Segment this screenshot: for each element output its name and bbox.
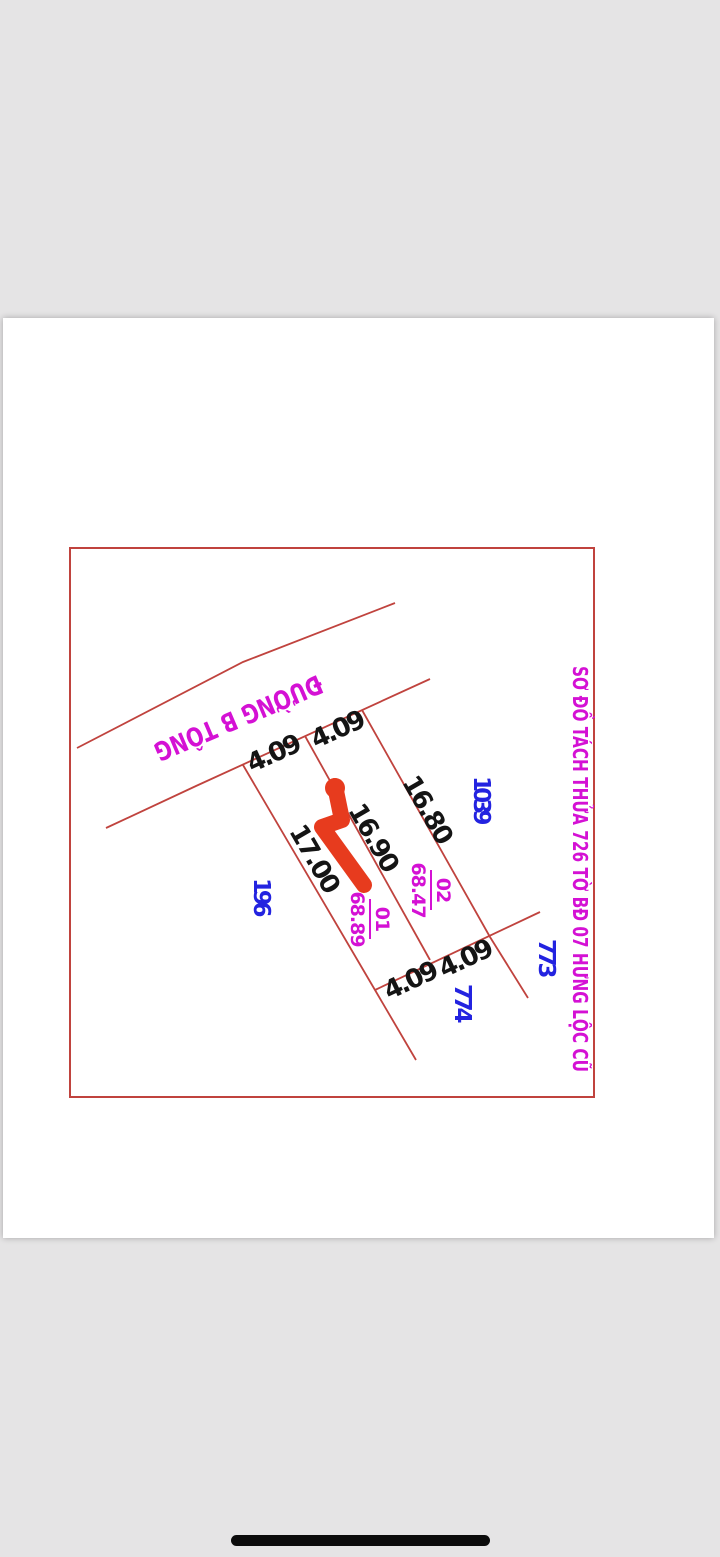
document-sheet: ĐƯỜNG B TÔNG SƠ ĐỒ TÁCH THỬA 726 TỜ BĐ 0… xyxy=(3,318,714,1238)
dim-side-right: 16.80 xyxy=(396,770,459,849)
phone-screen: ĐƯỜNG B TÔNG SƠ ĐỒ TÁCH THỬA 726 TỜ BĐ 0… xyxy=(0,0,720,1557)
map-title-vertical: SƠ ĐỒ TÁCH THỬA 726 TỜ BĐ 07 HƯNG LỘC CŨ xyxy=(568,666,594,1072)
dim-top-right: 4.09 xyxy=(306,705,369,756)
dim-bottom-right: 4.09 xyxy=(434,934,497,985)
neighbor-parcel-196: 196 xyxy=(248,878,274,916)
neighbor-parcel-773: 773 xyxy=(533,939,559,977)
plot-01-label: 01 68.89 xyxy=(346,891,393,946)
plot-01-number: 01 xyxy=(371,907,393,931)
dim-top-left: 4.09 xyxy=(242,729,305,780)
home-indicator[interactable] xyxy=(231,1535,490,1546)
dim-bottom-left: 4.09 xyxy=(379,956,442,1007)
neighbor-parcel-774: 774 xyxy=(449,984,475,1022)
survey-diagram: ĐƯỜNG B TÔNG SƠ ĐỒ TÁCH THỬA 726 TỜ BĐ 0… xyxy=(3,318,714,1238)
plot-02-label: 02 68.47 xyxy=(407,862,454,917)
plot-01-area: 68.89 xyxy=(346,891,368,946)
neighbor-parcel-1039: 1039 xyxy=(468,776,494,824)
plot-02-number: 02 xyxy=(432,878,454,902)
plot-02-area: 68.47 xyxy=(407,862,429,917)
